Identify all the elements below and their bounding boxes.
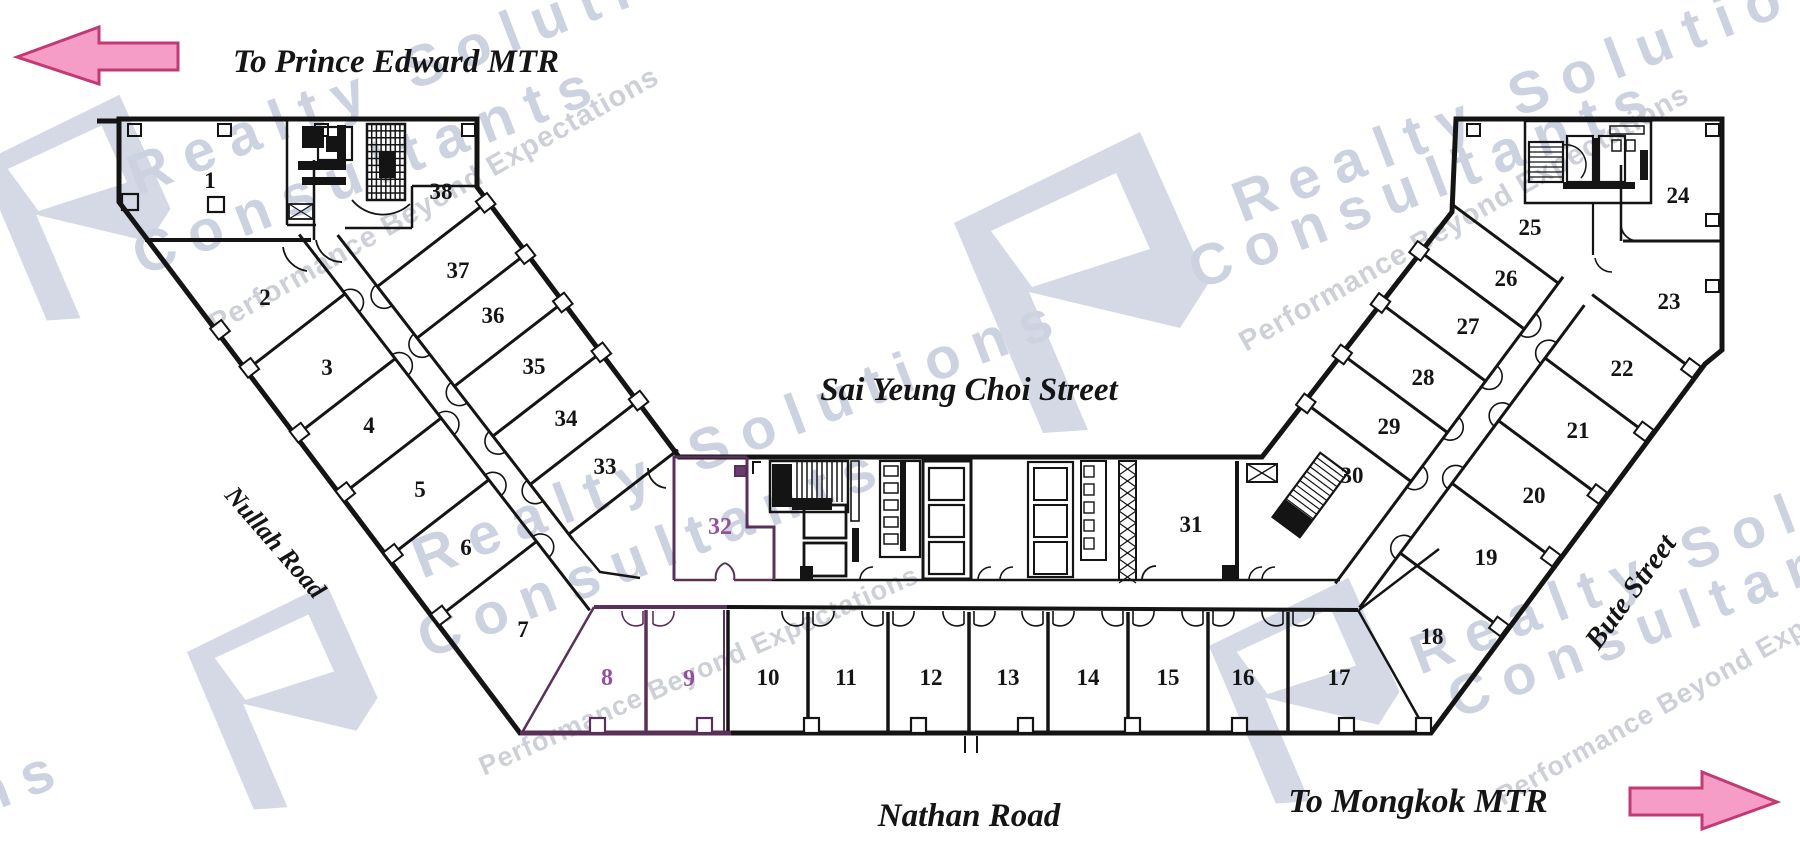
svg-text:15: 15 <box>1157 665 1180 690</box>
svg-text:29: 29 <box>1378 414 1401 439</box>
svg-text:37: 37 <box>447 258 470 283</box>
svg-text:20: 20 <box>1523 483 1546 508</box>
svg-text:2: 2 <box>259 285 271 310</box>
svg-text:To Mongkok MTR: To Mongkok MTR <box>1288 783 1547 820</box>
svg-text:30: 30 <box>1341 463 1364 488</box>
svg-text:9: 9 <box>683 666 695 692</box>
svg-text:32: 32 <box>708 514 732 540</box>
svg-text:19: 19 <box>1475 545 1498 570</box>
svg-text:24: 24 <box>1667 183 1691 208</box>
svg-text:8: 8 <box>601 665 613 691</box>
svg-text:17: 17 <box>1328 665 1351 690</box>
svg-text:Nathan Road: Nathan Road <box>877 798 1061 834</box>
svg-text:18: 18 <box>1421 624 1444 649</box>
svg-text:34: 34 <box>555 406 579 431</box>
svg-text:12: 12 <box>920 665 943 690</box>
svg-text:36: 36 <box>482 303 505 328</box>
svg-text:11: 11 <box>835 665 857 690</box>
svg-text:Sai Yeung Choi Street: Sai Yeung Choi Street <box>820 372 1118 408</box>
svg-text:35: 35 <box>523 354 546 379</box>
svg-text:16: 16 <box>1232 665 1255 690</box>
svg-text:25: 25 <box>1519 215 1542 240</box>
svg-text:10: 10 <box>757 665 780 690</box>
svg-text:14: 14 <box>1077 665 1101 690</box>
svg-text:22: 22 <box>1611 356 1634 381</box>
svg-text:33: 33 <box>594 454 617 479</box>
svg-text:26: 26 <box>1495 266 1518 291</box>
svg-text:5: 5 <box>414 477 426 502</box>
svg-text:21: 21 <box>1567 418 1590 443</box>
svg-text:28: 28 <box>1412 365 1435 390</box>
svg-text:6: 6 <box>460 535 472 560</box>
svg-text:23: 23 <box>1658 289 1681 314</box>
svg-text:3: 3 <box>321 355 333 380</box>
svg-text:13: 13 <box>997 665 1020 690</box>
svg-text:7: 7 <box>517 617 529 642</box>
svg-text:1: 1 <box>204 168 216 193</box>
svg-text:38: 38 <box>430 179 453 204</box>
svg-text:27: 27 <box>1457 314 1480 339</box>
svg-text:To Prince Edward MTR: To Prince Edward MTR <box>233 44 559 80</box>
svg-text:31: 31 <box>1180 512 1203 537</box>
svg-text:4: 4 <box>363 413 375 438</box>
